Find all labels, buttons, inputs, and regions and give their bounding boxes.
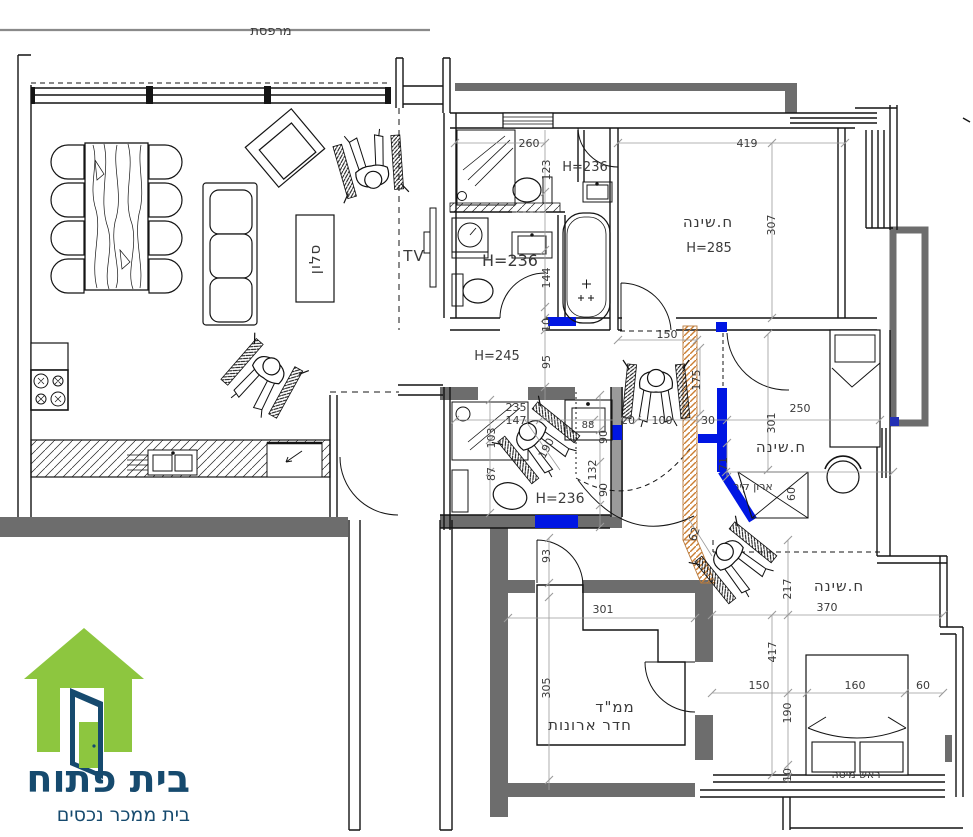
dim-190-bed: 190	[781, 703, 794, 724]
dim-301-room: 301	[765, 413, 778, 434]
dim-71: 71	[717, 457, 730, 471]
kitchen-cabinet	[31, 343, 68, 370]
dim-103: 103	[485, 428, 498, 449]
dim-250: 250	[790, 402, 811, 415]
dim-175: 175	[690, 370, 703, 391]
sofa	[203, 183, 257, 325]
dim-260: 260	[519, 137, 540, 150]
logo-door-handle	[92, 744, 95, 747]
safe-room-line1: ממ"ד	[595, 698, 634, 716]
living-room-label: סלון	[306, 244, 324, 274]
dim-305: 305	[540, 678, 553, 699]
dim-217: 217	[781, 579, 794, 600]
fridge	[267, 443, 322, 477]
single-bed	[830, 330, 880, 447]
bed-head-label: ראש מיטה	[831, 768, 880, 781]
dim-307: 307	[765, 215, 778, 236]
logo-tagline: בית ממכר נכסים	[57, 804, 190, 826]
dim-60-bed: 60	[916, 679, 930, 692]
bedroom-bottom-label: ח.שינה	[814, 577, 864, 595]
dim-95: 95	[540, 355, 553, 369]
hall-height: H=245	[474, 349, 519, 364]
dim-160: 160	[845, 679, 866, 692]
dim-10-bath: 10	[540, 318, 553, 332]
stove	[31, 370, 68, 410]
dim-10-bed: 10	[781, 768, 794, 782]
double-bed	[806, 655, 908, 775]
dim-235: 235	[506, 401, 527, 414]
dim-417: 417	[766, 642, 779, 663]
dim-150-bed: 150	[749, 679, 770, 692]
bedroom-bottom-furniture	[806, 655, 908, 775]
dim-147: 147	[506, 414, 527, 427]
dim-100: 100	[652, 414, 673, 427]
dim-144: 144	[540, 268, 553, 289]
dim-90a: 90	[597, 430, 610, 444]
bath-top-height1: H=236	[562, 160, 607, 175]
dim-150-hall: 150	[657, 328, 678, 341]
dim-301-mamad: 301	[593, 603, 614, 616]
dim-60-closet: 60	[785, 487, 798, 501]
kitchen-sink	[148, 450, 197, 475]
logo-brand: בית פתוח	[26, 757, 190, 801]
dim-90b: 90	[597, 483, 610, 497]
safe-room-line2: חדר ארונות	[548, 716, 632, 734]
dim-20: 20	[621, 414, 635, 427]
dim-93: 93	[540, 549, 553, 563]
floor-plan: מרפסת סלון TV H=236 H=236 ח.שינה H=285 H…	[0, 0, 973, 837]
bedroom-top-height: H=285	[686, 241, 731, 256]
dim-123: 123	[540, 160, 553, 181]
entry-window	[503, 113, 553, 128]
dim-132: 132	[586, 460, 599, 481]
balcony-label: מרפסת	[250, 24, 291, 39]
dim-87: 87	[485, 467, 498, 481]
bedroom-mid-label: ח.שינה	[756, 438, 806, 456]
dim-88: 88	[582, 420, 595, 431]
closet-label: ארון קיר	[733, 480, 773, 493]
dim-370: 370	[817, 601, 838, 614]
bath-small-height: H=236	[536, 491, 585, 507]
dim-419: 419	[737, 137, 758, 150]
dim-30: 30	[701, 414, 715, 427]
bath-top-height2: H=236	[482, 251, 538, 270]
bedroom-top-label: ח.שינה	[683, 213, 733, 231]
tv-label: TV	[402, 247, 424, 265]
